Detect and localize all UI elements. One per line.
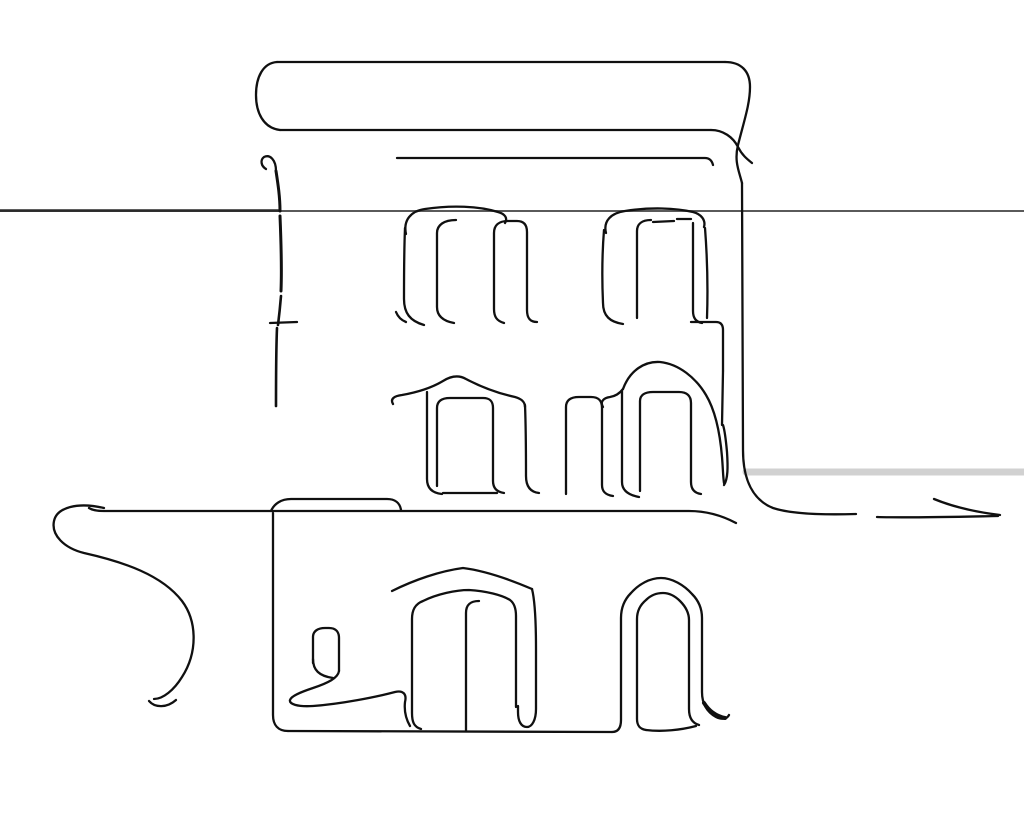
- ground-line: [89, 508, 736, 523]
- door-right-inner-bottom: [646, 726, 696, 731]
- win-up-right-side: [602, 230, 623, 324]
- win-mid-right-start-curl: [602, 389, 623, 407]
- door-left-gable-side: [518, 589, 536, 727]
- door-right-frame: [612, 578, 729, 732]
- win-up-right-pane-top-1: [653, 221, 674, 222]
- win-mid-right-arch: [623, 362, 724, 483]
- door-right-inner: [637, 593, 699, 730]
- win-mid-left-right-side: [525, 405, 539, 493]
- steps-pane-foot: [313, 659, 333, 678]
- right-wall: [742, 183, 856, 514]
- left-wall-dash-1: [276, 171, 280, 211]
- left-wall-dash-3: [278, 296, 281, 325]
- win-mid-right-jamb: [722, 371, 723, 425]
- roof-bottom-right-cross: [711, 130, 752, 163]
- base-line: [288, 731, 612, 732]
- win-up-right-pane-right: [693, 223, 702, 323]
- ground-right-flick: [934, 499, 1000, 515]
- steps-swoosh: [290, 671, 410, 726]
- left-wall-dash-2: [280, 216, 281, 291]
- win-up-left-pane-b: [494, 221, 537, 323]
- porch-ledge: [271, 499, 401, 511]
- left-wall-dash-4: [276, 328, 277, 406]
- steps-pane: [313, 628, 339, 671]
- left-wall-sill-tick: [270, 322, 297, 323]
- left-wall-taper-tip: [273, 402, 280, 487]
- win-up-right-arch: [605, 208, 704, 233]
- win-mid-right-pane: [640, 392, 701, 494]
- line-art-building-sketch: [0, 0, 1024, 819]
- win-up-left-pane-a: [437, 220, 456, 323]
- door-left-gable: [392, 568, 532, 591]
- porch-left-post: [273, 513, 288, 731]
- win-up-right-pane-left: [637, 220, 651, 318]
- roof-right-cap: [725, 62, 750, 183]
- flourish-s-curve: [54, 506, 194, 699]
- win-mid-center-pane: [566, 397, 613, 496]
- fascia-line: [397, 158, 713, 165]
- win-up-left-side: [404, 228, 424, 325]
- win-up-right-sill: [691, 322, 723, 371]
- ground-right-segment: [877, 516, 998, 517]
- win-mid-left-pane: [437, 398, 504, 493]
- drawing-canvas: [0, 0, 1024, 819]
- flourish-tail-flick: [149, 700, 176, 706]
- win-up-right-jamb: [705, 228, 707, 318]
- win-mid-left-arch: [392, 377, 525, 407]
- door-left-mullion: [466, 601, 479, 731]
- door-left-frame: [412, 590, 516, 729]
- win-mid-left-side: [427, 392, 442, 494]
- roof-left-cap: [256, 62, 280, 130]
- left-wall-top-curl: [262, 156, 276, 171]
- win-up-left-tick: [396, 312, 406, 322]
- win-mid-right-side: [622, 391, 639, 497]
